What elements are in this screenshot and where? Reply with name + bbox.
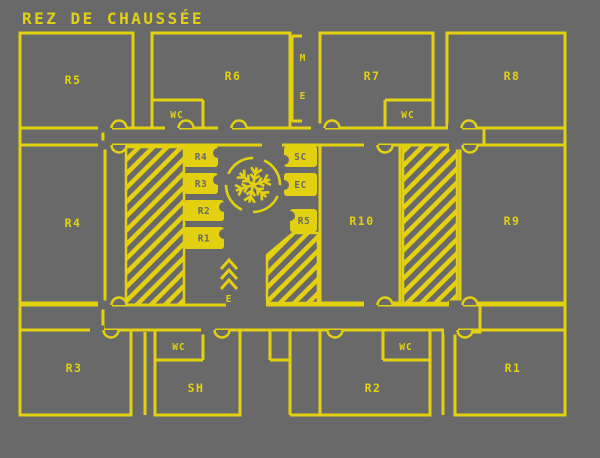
- snowflake-icon: [221, 153, 285, 217]
- closet-sc-label: SC: [294, 152, 306, 163]
- room-r2-label: R2: [365, 381, 382, 395]
- closet-c2-label: R3: [195, 179, 207, 190]
- room-sh-label: SH: [188, 381, 205, 395]
- room-sh-outline: [155, 330, 240, 415]
- room-r2-outline: [320, 330, 430, 415]
- floor-plan: REZ DE CHAUSSÉE: [0, 0, 600, 458]
- wc-r6-label: WC: [170, 110, 183, 121]
- bottom-shaft-walls: [270, 330, 320, 415]
- hatched-zone-center: [267, 233, 318, 303]
- me-shaft-labels: M E: [300, 53, 307, 102]
- closet-r5-label: R5: [298, 216, 310, 227]
- room-r5-label: R5: [65, 73, 82, 87]
- page-title: REZ DE CHAUSSÉE: [22, 9, 204, 28]
- closet-c3-label: R2: [198, 206, 210, 217]
- me-shaft-walls: [292, 36, 302, 121]
- room-r1-label: R1: [505, 361, 522, 375]
- room-r10-label: R10: [349, 214, 374, 228]
- closet-right-stack: SC EC R5: [279, 146, 317, 232]
- room-r4-label: R4: [65, 216, 82, 230]
- room-r1-outline: [455, 305, 565, 415]
- hatched-zone-left: [126, 147, 184, 305]
- escalator-label: E: [226, 294, 233, 305]
- room-r3-label: R3: [66, 361, 83, 375]
- closet-c4-label: R1: [198, 234, 210, 245]
- wc-r2-label: WC: [399, 342, 412, 353]
- room-r4-outline: [20, 145, 105, 303]
- room-r9-label: R9: [504, 214, 521, 228]
- floor-plan-svg: REZ DE CHAUSSÉE: [0, 0, 600, 458]
- closet-ec-label: EC: [294, 180, 306, 191]
- hatched-zone-right: [403, 145, 457, 303]
- shaft-m-label: M: [300, 53, 307, 64]
- closet-left-stack: R4 R3 R2 R1: [184, 146, 229, 249]
- closet-c1-label: R4: [195, 152, 207, 163]
- shaft-e-label: E: [300, 91, 307, 102]
- room-r7-label: R7: [364, 69, 381, 83]
- wc-r7-label: WC: [401, 110, 414, 121]
- room-r6-label: R6: [225, 69, 242, 83]
- wc-sh-label: WC: [172, 342, 185, 353]
- escalator-chevrons-icon: E: [221, 260, 237, 305]
- room-r8-label: R8: [504, 69, 521, 83]
